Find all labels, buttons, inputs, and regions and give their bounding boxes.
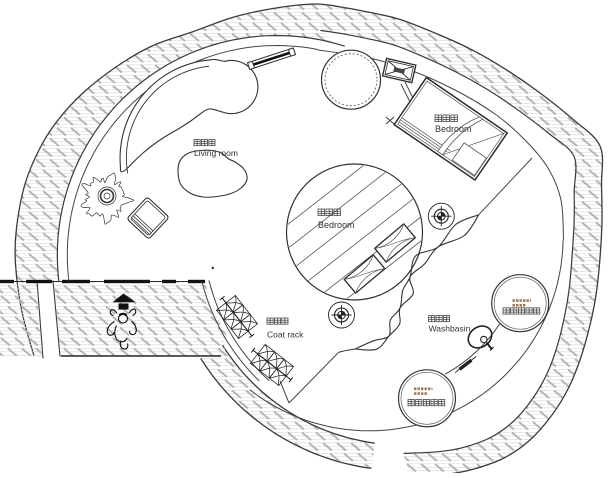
svg-text:Bedroom: Bedroom (318, 220, 355, 230)
svg-text:Bedroom: Bedroom (435, 124, 472, 134)
svg-text:Living room: Living room (194, 148, 238, 158)
svg-text:Coat rack: Coat rack (267, 330, 304, 340)
svg-text:Washbasin: Washbasin (429, 324, 471, 334)
